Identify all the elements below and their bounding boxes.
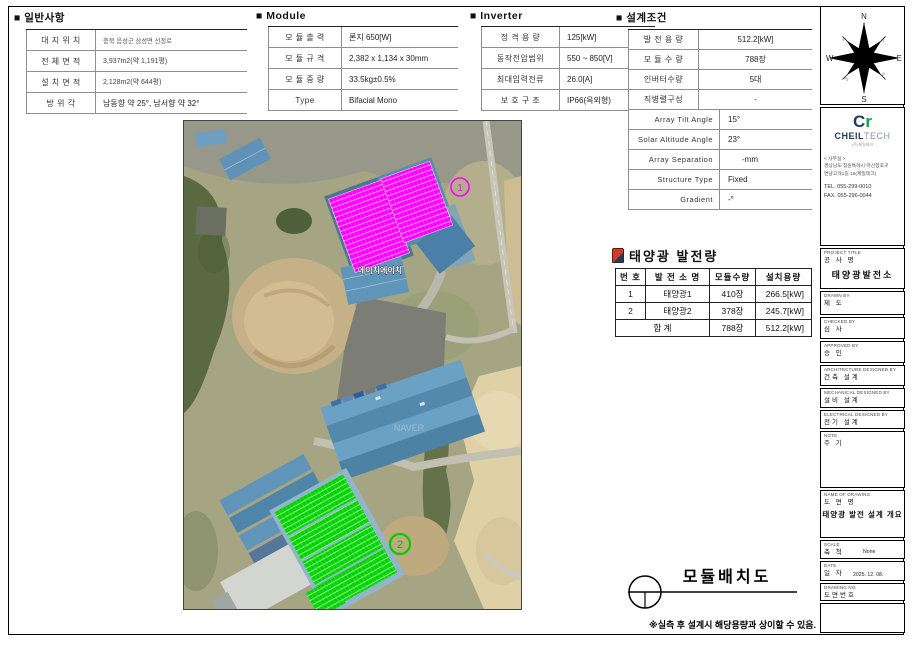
row-label: 설 치 면 적: [26, 72, 96, 92]
generation-section-icon: [612, 248, 624, 263]
field-project-title: PROJECT TITLE 공 사 명 태양광발전소: [820, 248, 905, 289]
table-row: 모 듈 출 력론지 650[W]: [268, 27, 458, 48]
table-row: Solar Altitude Angle23°: [628, 130, 812, 150]
row-value: 23°: [720, 130, 812, 149]
row-label: 보 호 구 조: [481, 90, 560, 110]
office-fax: FAX. 055-296-0044: [824, 192, 901, 201]
imagery-credit-watermark: NAVER: [394, 423, 425, 433]
office-info: < 사무실 > 경상남도 창원특례시 마산합포구 연남고개1길 16(제일테크)…: [824, 156, 901, 200]
table-row: 모 듈 수 량788장: [628, 50, 812, 70]
cell-plant: 태양광1: [646, 286, 710, 303]
row-value: -mm: [720, 150, 812, 169]
field-drawn-by: DRAWN BY 제 도: [820, 291, 905, 315]
design-conditions-table: ■ 설계조건 발 전 용 량512.2[kW] 모 듈 수 량788장 인버터수…: [616, 10, 812, 210]
field-scale: SCALE 축 척 None: [820, 540, 905, 559]
row-label: 방 위 각: [26, 93, 96, 113]
cell-modules: 410장: [710, 286, 756, 303]
row-label: 인버터수량: [628, 70, 699, 89]
company-box: Cr CHEILTECH (주)제일테크 < 사무실 > 경상남도 창원특례시 …: [820, 107, 905, 246]
row-label: Structure Type: [628, 170, 720, 189]
field-mechanical-designed: MECHANICAL DESIGNED BY 설비 설계: [820, 388, 905, 408]
site-aerial-map: 1 2 에이치에이치 NAVER: [183, 120, 522, 610]
table-row: 모 듈 중 량33.5kg±0.5%: [268, 69, 458, 90]
compass-rose: N S E W 45 45 4: [824, 9, 904, 103]
row-label: Array Separation: [628, 150, 720, 169]
table-row: 설 치 면 적2,128m2(약 644평): [26, 72, 247, 93]
cell-total-modules: 788장: [710, 320, 756, 337]
map-watermark-label: 에이치에이치: [358, 265, 402, 275]
row-value: 788장: [699, 50, 812, 69]
section-title-general: ■ 일반사항: [14, 10, 247, 25]
cell-capacity: 245.7[kW]: [756, 303, 812, 320]
field-empty: [820, 603, 905, 633]
generation-title-text: 태양광 발전량: [629, 246, 718, 265]
svg-text:45: 45: [880, 72, 886, 78]
row-value: 론지 650[W]: [342, 27, 458, 47]
layout-title: 모듈배치도: [683, 568, 772, 586]
table-row: 방 위 각남동향 약 25°, 남서향 약 32°: [26, 93, 247, 114]
cell-modules: 378장: [710, 303, 756, 320]
date-value: 2025. 12. 08.: [853, 572, 883, 578]
table-row: 전 체 면 적3,937m2(약 1,191평): [26, 51, 247, 72]
col-header: 발 전 소 명: [646, 269, 710, 286]
generation-section-title: 태양광 발전량: [612, 246, 718, 265]
row-value: 5대: [699, 70, 812, 89]
field-electrical-designed: ELECTRICAL DESIGNED BY 전기 설계: [820, 410, 905, 429]
svg-text:2: 2: [397, 539, 403, 551]
module-table: ■ Module 모 듈 출 력론지 650[W] 모 듈 규 격2,382 x…: [256, 10, 458, 111]
compass-box: N S E W 45 45 4: [820, 6, 905, 105]
cell-capacity: 266.5[kW]: [756, 286, 812, 303]
cheiltech-logo-sub: (주)제일테크: [824, 142, 901, 148]
cheiltech-logo-name: CHEILTECH: [824, 131, 901, 141]
row-label: 동작전압범위: [481, 48, 560, 68]
table-row: Array Separation-mm: [628, 150, 812, 170]
drawing-sheet: ■ 일반사항 대 지 위 치충북 음성군 삼성면 선정로 전 체 면 적3,93…: [0, 0, 912, 645]
row-value: Fixed: [720, 170, 812, 189]
cell-total-label: 합 계: [616, 320, 710, 337]
row-value: 남동향 약 25°, 남서향 약 32°: [96, 93, 247, 113]
generation-header-row: 번 호 발 전 소 명 모듈수량 설치용량: [616, 269, 812, 286]
col-header: 번 호: [616, 269, 646, 286]
row-label: 정 격 용 량: [481, 27, 560, 47]
svg-text:45: 45: [880, 37, 886, 43]
row-label: 모 듈 규 격: [268, 48, 342, 68]
row-label: 발 전 용 량: [628, 30, 699, 49]
svg-text:S: S: [861, 95, 866, 103]
row-label: 모 듈 중 량: [268, 69, 342, 89]
field-approved-by: APPROVED BY 승 인: [820, 341, 905, 363]
drawing-name-value: 태양광 발전 설계 개요: [821, 509, 904, 520]
col-header: 모듈수량: [710, 269, 756, 286]
row-label: 대 지 위 치: [26, 30, 96, 50]
table-row: 1 태양광1 410장 266.5[kW]: [616, 286, 812, 303]
field-architecture-designed: ARCHITECTURE DESIGNED BY 건축 설계: [820, 365, 905, 386]
field-note: NOTE 주 기: [820, 431, 905, 488]
section-title-module: ■ Module: [256, 10, 458, 22]
total-row: 합 계 788장 512.2[kW]: [616, 320, 812, 337]
cheiltech-logo-mark: Cr: [824, 113, 901, 130]
scale-value: None: [863, 549, 875, 555]
row-label: Gradient: [628, 190, 720, 209]
table-row: Gradient-°: [628, 190, 812, 210]
section-title-design: ■ 설계조건: [616, 10, 812, 25]
row-value: 33.5kg±0.5%: [342, 69, 458, 89]
office-address-line1: 경상남도 창원특례시 마산합포구: [824, 163, 901, 170]
table-row: Structure TypeFixed: [628, 170, 812, 190]
row-label: Type: [268, 90, 342, 110]
svg-text:E: E: [897, 54, 902, 63]
cell-no: 1: [616, 286, 646, 303]
field-drawing-name: NAME OF DRAWING 도 면 명 태양광 발전 설계 개요: [820, 490, 905, 538]
table-row: 모 듈 규 격2,382 x 1,134 x 30mm: [268, 48, 458, 69]
office-address-line2: 연남고개1길 16(제일테크): [824, 171, 901, 178]
svg-text:1: 1: [457, 183, 463, 194]
table-row: Array Tilt Angle15°: [628, 110, 812, 130]
row-value: 충북 음성군 삼성면 선정로: [96, 30, 247, 50]
row-value: -°: [720, 190, 812, 209]
table-row: 인버터수량5대: [628, 70, 812, 90]
row-label: Array Tilt Angle: [628, 110, 720, 129]
row-label: 최대입력전류: [481, 69, 560, 89]
cell-no: 2: [616, 303, 646, 320]
row-label: 모 듈 수 량: [628, 50, 699, 69]
row-label: Solar Altitude Angle: [628, 130, 720, 149]
row-value: Bifacial Mono: [342, 90, 458, 110]
table-row: 직병렬구성-: [628, 90, 812, 110]
generation-table: 번 호 발 전 소 명 모듈수량 설치용량 1 태양광1 410장 266.5[…: [615, 268, 812, 337]
row-value: 15°: [720, 110, 812, 129]
field-date: DATE 일 자 2025. 12. 08.: [820, 561, 905, 581]
office-heading: < 사무실 >: [824, 156, 901, 163]
field-checked-by: CHECKED BY 심 사: [820, 317, 905, 339]
module-layout-symbol: 모듈배치도: [615, 555, 815, 615]
table-row: 발 전 용 량512.2[kW]: [628, 30, 812, 50]
row-value: 512.2[kW]: [699, 30, 812, 49]
row-label: 전 체 면 적: [26, 51, 96, 71]
row-value: 3,937m2(약 1,191평): [96, 51, 247, 71]
svg-text:45: 45: [841, 36, 847, 42]
office-tel: TEL. 055-299-0010: [824, 183, 901, 192]
col-header: 설치용량: [756, 269, 812, 286]
project-title-value: 태양광발전소: [821, 268, 904, 281]
row-value: -: [699, 90, 812, 109]
cell-total-capacity: 512.2[kW]: [756, 320, 812, 337]
svg-text:45: 45: [844, 76, 850, 82]
table-row: 2 태양광2 378장 245.7[kW]: [616, 303, 812, 320]
svg-text:N: N: [861, 12, 867, 21]
row-value: 2,128m2(약 644평): [96, 72, 247, 92]
row-label: 직병렬구성: [628, 90, 699, 109]
footnote: ※실측 후 설계시 해당용량과 상이할 수 있음.: [598, 618, 816, 631]
table-row: TypeBifacial Mono: [268, 90, 458, 111]
table-row: 대 지 위 치충북 음성군 삼성면 선정로: [26, 30, 247, 51]
general-info-table: ■ 일반사항 대 지 위 치충북 음성군 삼성면 선정로 전 체 면 적3,93…: [14, 10, 247, 114]
row-label: 모 듈 출 력: [268, 27, 342, 47]
field-drawing-no: DRAWING NO 도면번호: [820, 583, 905, 601]
row-value: 2,382 x 1,134 x 30mm: [342, 48, 458, 68]
cell-plant: 태양광2: [646, 303, 710, 320]
